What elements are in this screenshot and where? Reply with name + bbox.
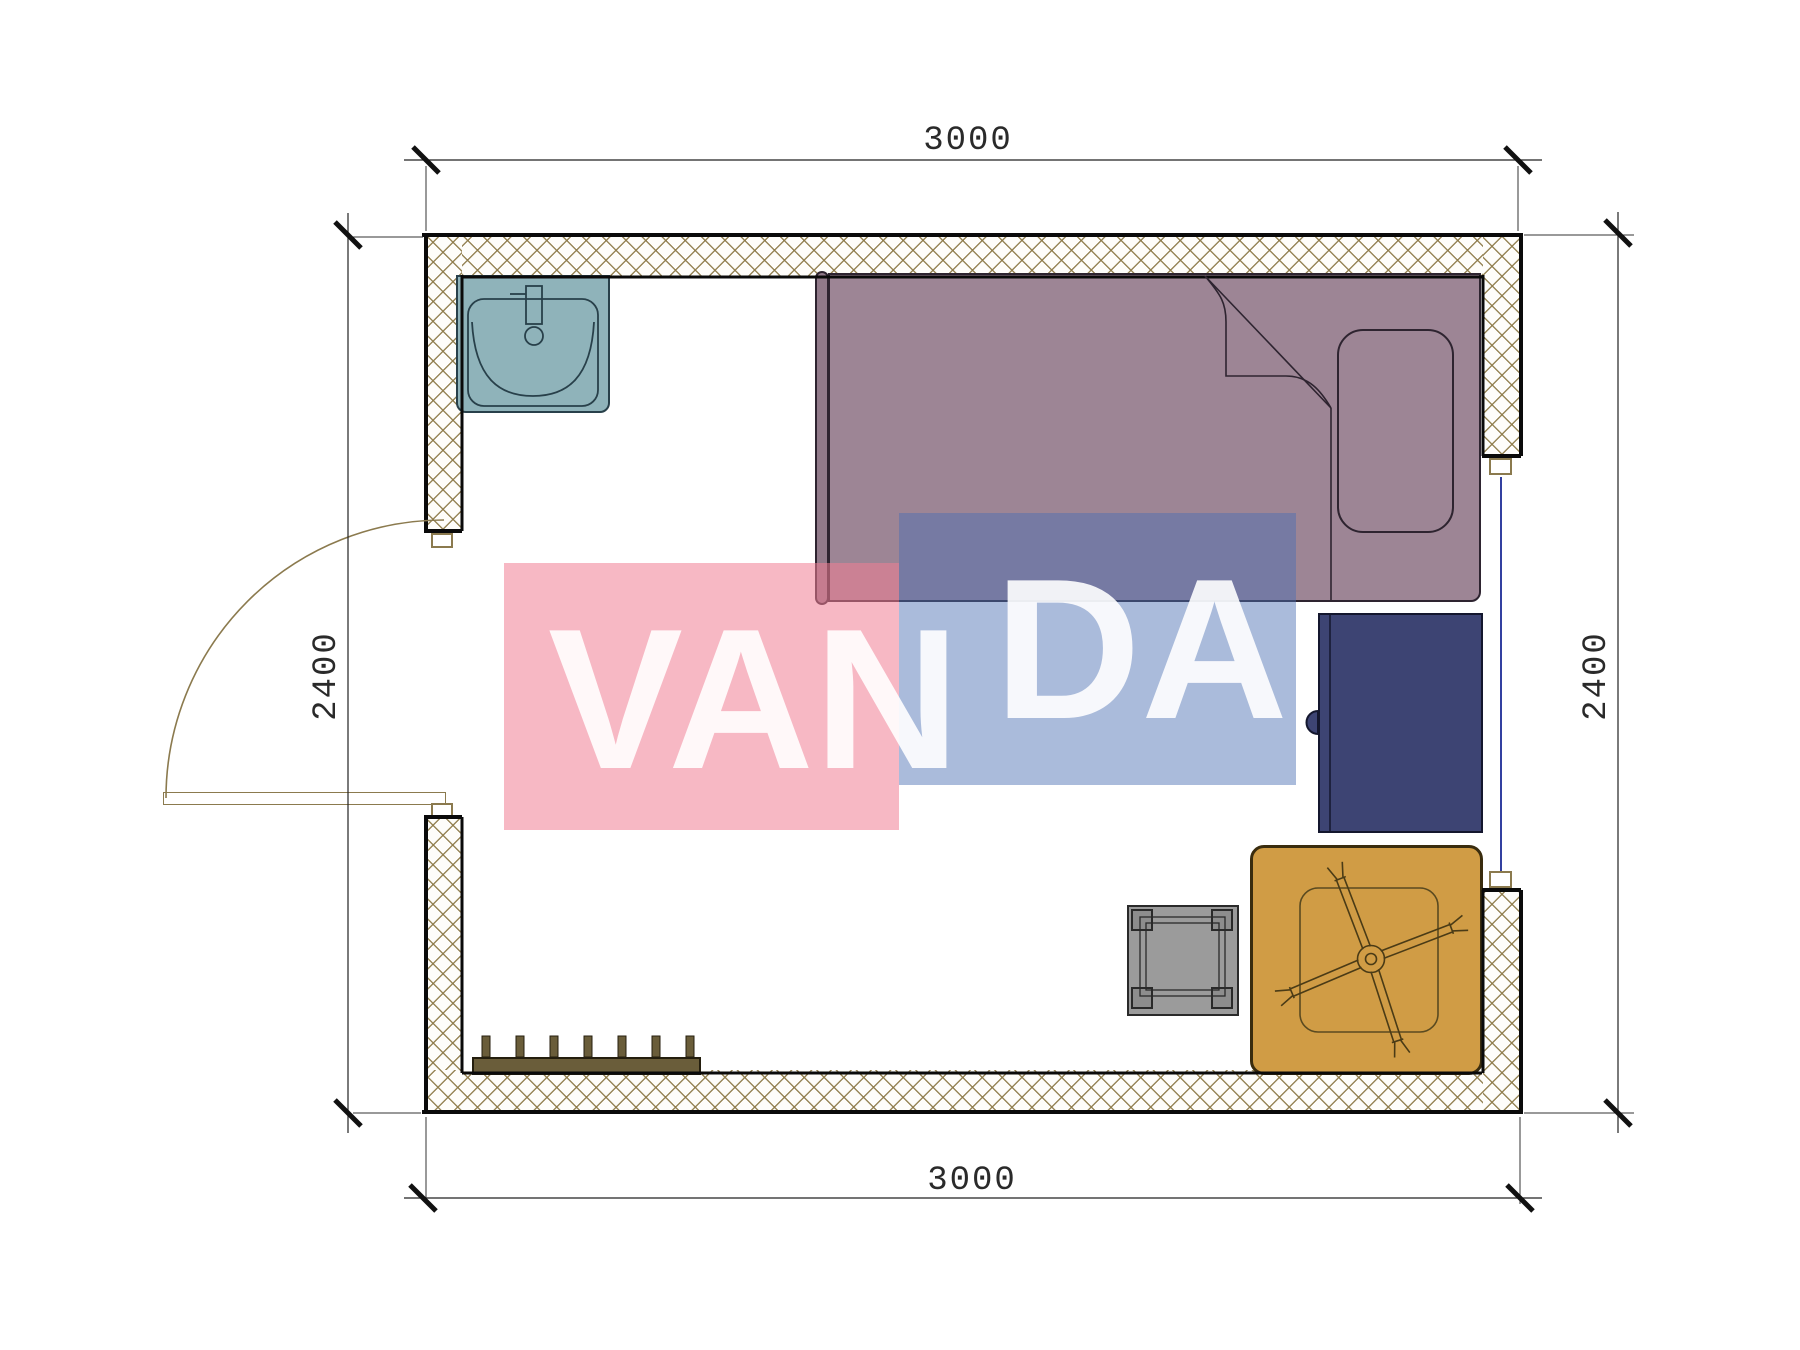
dimension-label-right: 2400 (1578, 631, 1616, 721)
door-swing-icon (166, 520, 444, 798)
wall-top (424, 233, 1521, 277)
door-jamb-top (431, 533, 453, 548)
stool-leg (1211, 909, 1233, 931)
stool-leg (1211, 987, 1233, 1009)
watermark-blue-rect (899, 513, 1296, 785)
dimension-label-left: 2400 (308, 631, 346, 721)
watermark-pink-rect (504, 563, 899, 830)
door-leaf-icon (163, 792, 446, 805)
wall-bottom (424, 1070, 1521, 1114)
stool-leg (1131, 987, 1153, 1009)
door-jamb-bottom (431, 803, 453, 818)
dimension-label-top: 3000 (868, 122, 1068, 160)
sink-icon (456, 275, 610, 413)
wall-right-upper (1483, 233, 1521, 456)
bed-footboard (815, 271, 829, 605)
desk-knob (1307, 711, 1319, 734)
window-jamb-bottom (1489, 871, 1512, 888)
window-jamb-top (1489, 458, 1512, 475)
coat-rack-icon (472, 1057, 701, 1075)
wall-right-lower (1483, 890, 1521, 1114)
floor-plan: VAN DA 3000 3000 2400 2400 (0, 0, 1800, 1350)
pillow-icon (1337, 329, 1454, 533)
dimension-label-bottom: 3000 (872, 1162, 1072, 1200)
stool-leg (1131, 909, 1153, 931)
desk-icon (1318, 613, 1483, 833)
table-with-rack-icon (1250, 845, 1483, 1075)
